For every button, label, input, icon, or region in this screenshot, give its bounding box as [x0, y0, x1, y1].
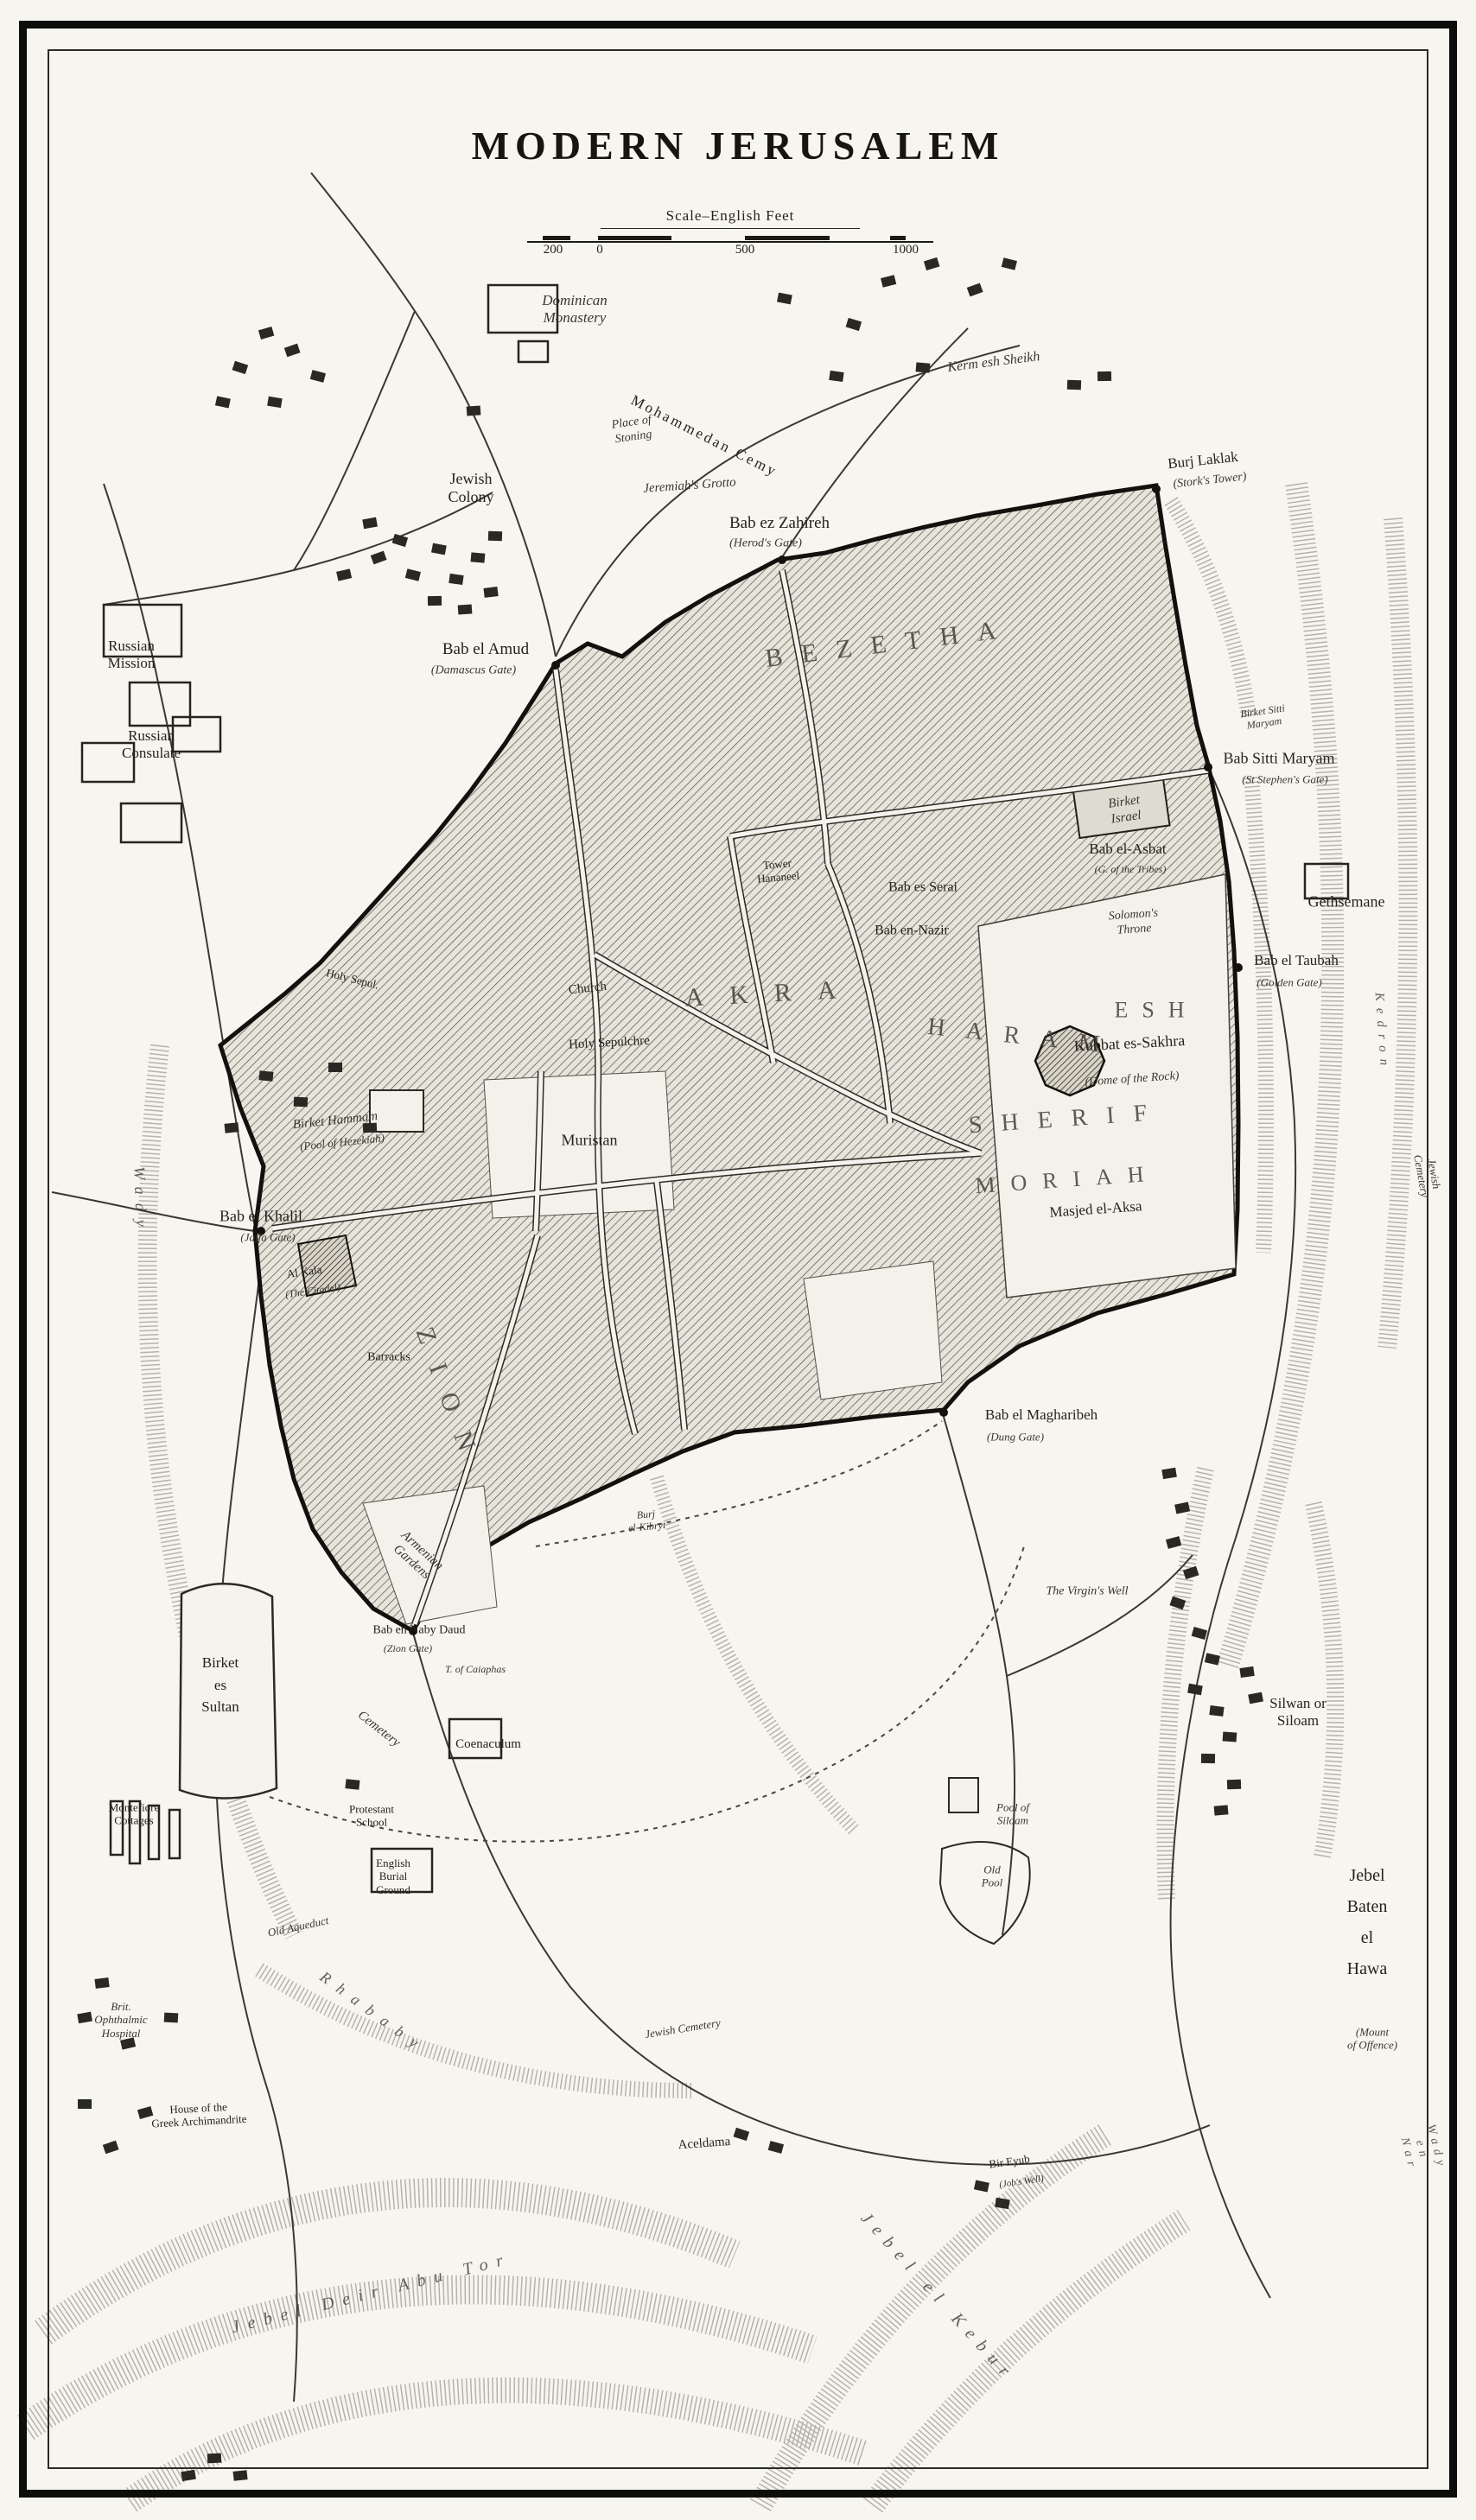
- scale-bar: [527, 234, 933, 243]
- citadel: [298, 1235, 356, 1296]
- map-title: MODERN JERUSALEM: [472, 123, 1005, 168]
- map-canvas: [0, 0, 1476, 2520]
- scale-label: Scale–English Feet: [601, 207, 860, 229]
- haram-platform: [978, 874, 1236, 1298]
- scale-tick: 0: [596, 243, 603, 257]
- dome-of-the-rock: [1035, 1026, 1104, 1095]
- scale-tick: 200: [544, 243, 563, 257]
- scale-tick: 1000: [893, 243, 919, 257]
- birket-hammam-pool: [370, 1090, 423, 1132]
- map-page: MODERN JERUSALEM Scale–English Feet 2000…: [0, 0, 1476, 2520]
- scale-box: Scale–English Feet 20005001000: [527, 207, 933, 260]
- birket-es-sultan-pool: [180, 1584, 277, 1798]
- scale-tick: 500: [735, 243, 755, 257]
- scale-ticks: 20005001000: [527, 243, 933, 260]
